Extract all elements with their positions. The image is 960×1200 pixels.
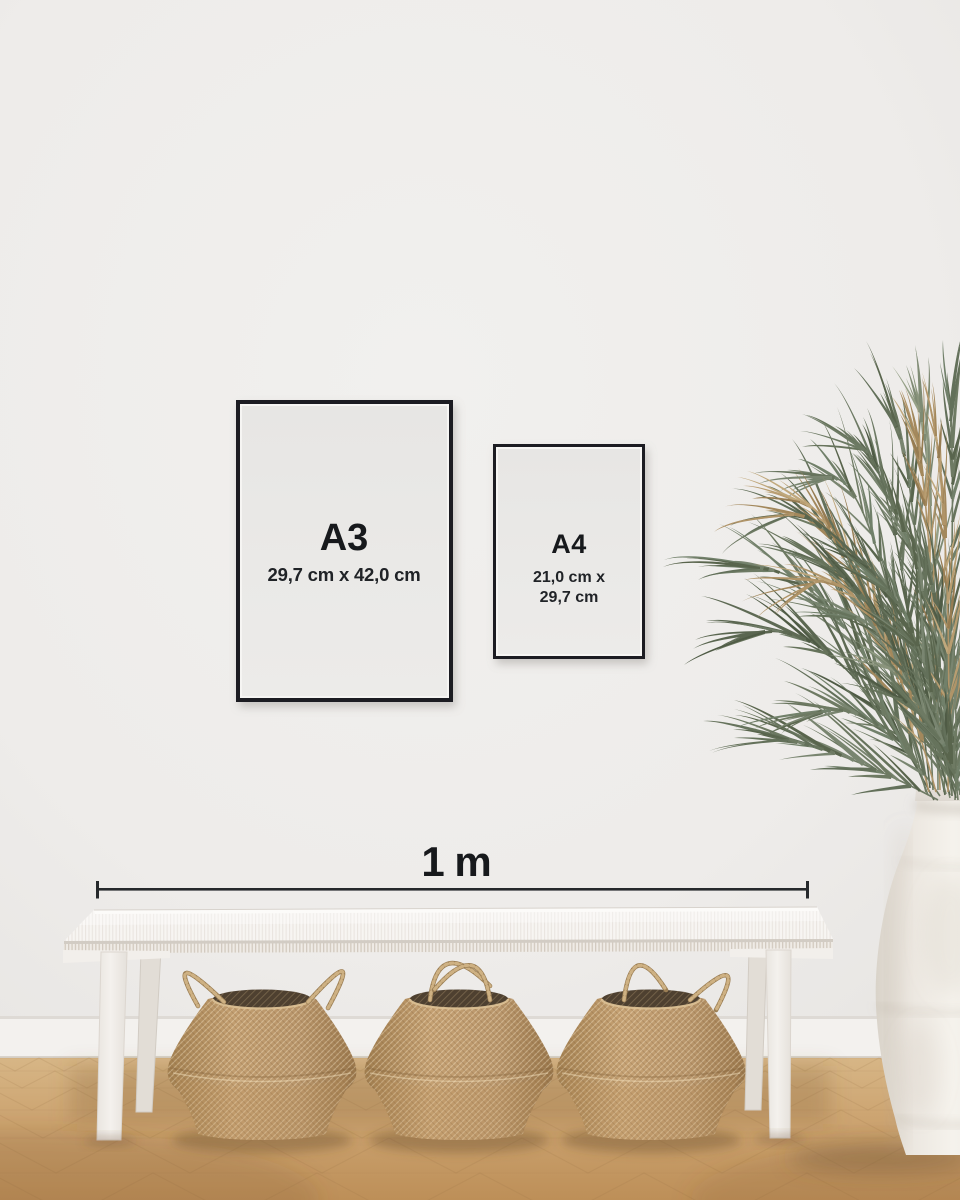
svg-text:1 m: 1 m — [421, 838, 490, 885]
svg-text:A3: A3 — [320, 517, 369, 559]
svg-text:29,7 cm: 29,7 cm — [540, 589, 599, 606]
svg-text:A4: A4 — [551, 529, 587, 559]
svg-text:21,0 cm x: 21,0 cm x — [533, 569, 605, 586]
svg-text:29,7 cm x 42,0 cm: 29,7 cm x 42,0 cm — [268, 564, 421, 585]
